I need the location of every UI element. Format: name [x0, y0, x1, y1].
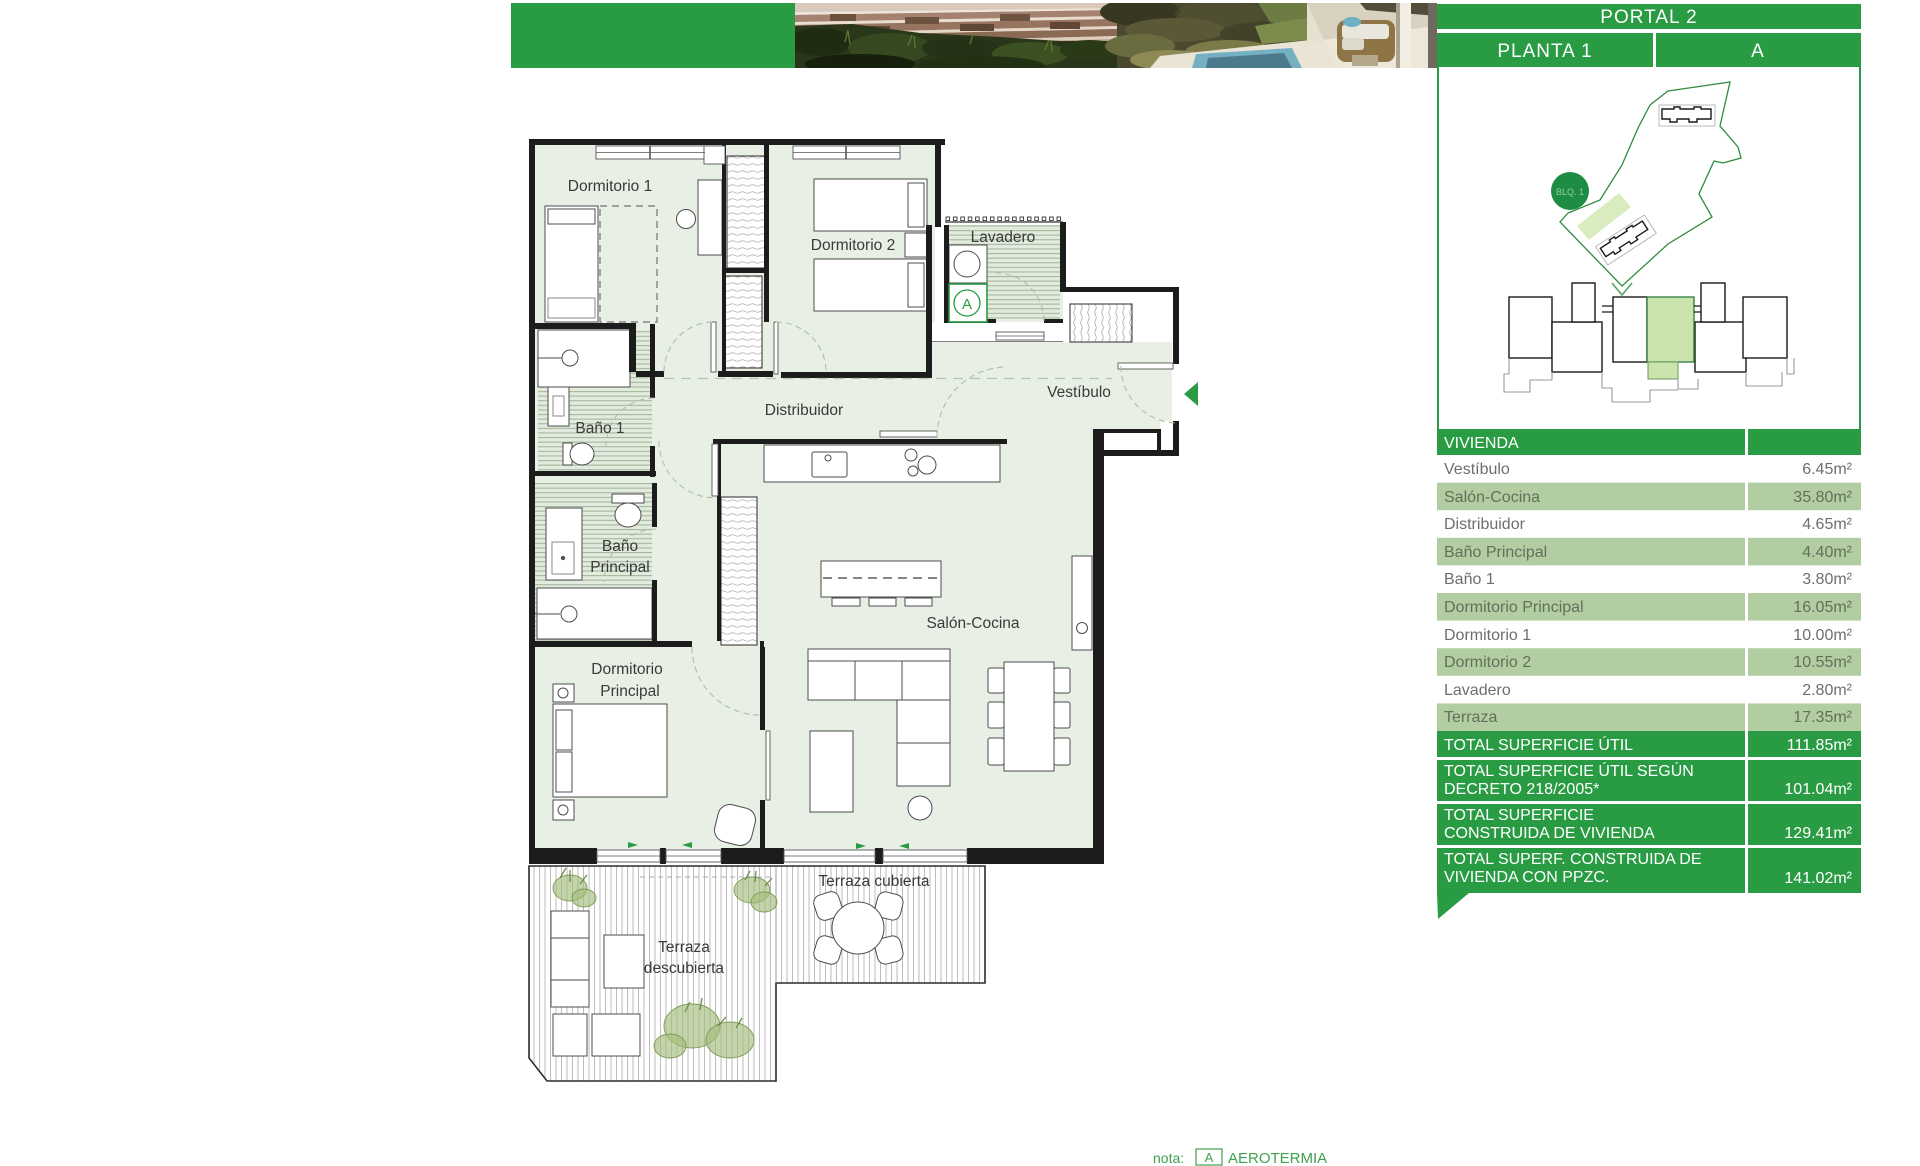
svg-text:Salón-Cocina: Salón-Cocina [1444, 489, 1540, 506]
svg-text:129.41m²: 129.41m² [1784, 825, 1852, 842]
svg-text:141.02m²: 141.02m² [1784, 870, 1852, 887]
svg-text:101.04m²: 101.04m² [1784, 781, 1852, 798]
svg-text:16.05m²: 16.05m² [1793, 599, 1852, 616]
svg-text:Distribuidor: Distribuidor [1444, 516, 1526, 533]
svg-text:Lavadero: Lavadero [971, 229, 1036, 246]
svg-text:Principal: Principal [590, 559, 649, 576]
svg-text:2.80m²: 2.80m² [1802, 682, 1852, 699]
svg-text:Vestíbulo: Vestíbulo [1444, 461, 1510, 478]
svg-text:10.00m²: 10.00m² [1793, 627, 1852, 644]
svg-text:4.65m²: 4.65m² [1802, 516, 1852, 533]
svg-text:Vestíbulo: Vestíbulo [1047, 384, 1111, 401]
svg-text:CONSTRUIDA DE VIVIENDA: CONSTRUIDA DE VIVIENDA [1444, 825, 1655, 842]
svg-text:Dormitorio 1: Dormitorio 1 [568, 178, 652, 195]
svg-text:4.40m²: 4.40m² [1802, 544, 1852, 561]
svg-text:DECRETO 218/2005*: DECRETO 218/2005* [1444, 781, 1599, 798]
svg-text:35.80m²: 35.80m² [1793, 489, 1852, 506]
svg-text:Distribuidor: Distribuidor [765, 402, 843, 419]
svg-text:VIVIENDA: VIVIENDA [1444, 435, 1519, 452]
svg-text:Dormitorio 2: Dormitorio 2 [1444, 654, 1531, 671]
svg-text:TOTAL SUPERFICIE: TOTAL SUPERFICIE [1444, 807, 1594, 824]
svg-text:17.35m²: 17.35m² [1793, 709, 1852, 726]
svg-text:3.80m²: 3.80m² [1802, 571, 1852, 588]
svg-text:A: A [1205, 1150, 1214, 1165]
svg-text:BLQ. 1: BLQ. 1 [1556, 187, 1584, 197]
svg-text:PLANTA 1: PLANTA 1 [1497, 41, 1592, 62]
svg-text:A: A [1751, 41, 1765, 62]
svg-text:Lavadero: Lavadero [1444, 682, 1511, 699]
svg-text:Baño 1: Baño 1 [575, 420, 624, 437]
svg-text:Baño Principal: Baño Principal [1444, 544, 1547, 561]
svg-text:PORTAL 2: PORTAL 2 [1600, 7, 1697, 28]
svg-text:Dormitorio Principal: Dormitorio Principal [1444, 599, 1584, 616]
svg-text:AEROTERMIA: AEROTERMIA [1228, 1150, 1327, 1166]
svg-text:VIVIENDA CON PPZC.: VIVIENDA CON PPZC. [1444, 869, 1609, 886]
svg-text:Terraza cubierta: Terraza cubierta [818, 873, 930, 890]
svg-text:Baño 1: Baño 1 [1444, 571, 1495, 588]
svg-text:6.45m²: 6.45m² [1802, 461, 1852, 478]
svg-text:TOTAL SUPERF. CONSTRUIDA DE: TOTAL SUPERF. CONSTRUIDA DE [1444, 851, 1702, 868]
svg-text:Dormitorio 2: Dormitorio 2 [811, 237, 895, 254]
svg-text:TOTAL SUPERFICIE ÚTIL: TOTAL SUPERFICIE ÚTIL [1444, 735, 1633, 754]
svg-text:Principal: Principal [600, 683, 659, 700]
svg-text:111.85m²: 111.85m² [1787, 737, 1853, 754]
svg-text:10.55m²: 10.55m² [1793, 654, 1852, 671]
svg-text:Dormitorio: Dormitorio [591, 661, 662, 678]
svg-text:nota:: nota: [1153, 1150, 1184, 1166]
svg-text:A: A [962, 296, 972, 313]
svg-text:Dormitorio 1: Dormitorio 1 [1444, 627, 1531, 644]
svg-text:Salón-Cocina: Salón-Cocina [926, 615, 1019, 632]
svg-text:descubierta: descubierta [644, 960, 725, 977]
svg-text:TOTAL SUPERFICIE ÚTIL SEGÚN: TOTAL SUPERFICIE ÚTIL SEGÚN [1444, 761, 1694, 780]
svg-text:Terraza: Terraza [658, 939, 710, 956]
svg-text:Baño: Baño [602, 538, 638, 555]
svg-text:Terraza: Terraza [1444, 709, 1497, 726]
